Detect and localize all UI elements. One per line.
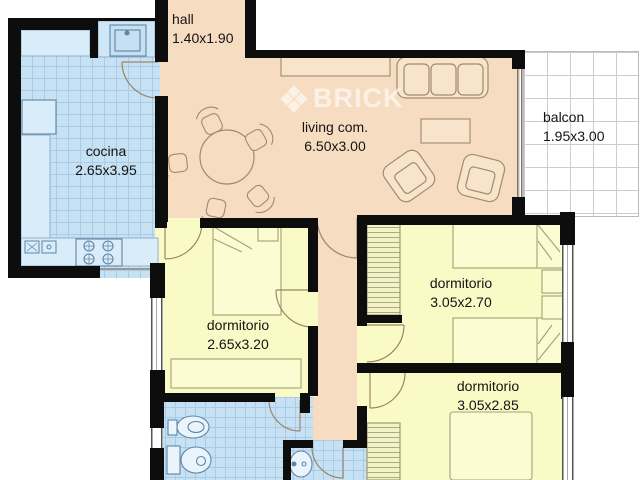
label-cocina: cocina 2.65x3.95 xyxy=(41,142,171,180)
floor-plan: BRICK hall 1.40x1.90 cocina 2.65x3.95 li… xyxy=(0,0,640,480)
toilet-icon xyxy=(167,446,211,474)
room-dims: 3.05x2.85 xyxy=(423,396,553,415)
room-name: hall xyxy=(172,10,234,29)
nightstand-icon xyxy=(542,270,563,319)
dresser-icon xyxy=(171,359,301,388)
room-dims: 1.95x3.00 xyxy=(543,127,605,146)
room-name: dormitorio xyxy=(423,377,553,396)
label-balcon: balcon 1.95x3.00 xyxy=(543,108,605,146)
kitchen-sink-icon xyxy=(110,25,146,56)
double-bed-icon xyxy=(450,412,532,480)
room-dims: 2.65x3.95 xyxy=(41,161,171,180)
label-dormitorio-1: dormitorio 2.65x3.20 xyxy=(173,316,303,354)
coffee-table-icon xyxy=(421,119,470,143)
sofa-icon xyxy=(397,57,488,98)
sideboard-icon xyxy=(281,57,390,76)
label-dormitorio-2: dormitorio 3.05x2.70 xyxy=(396,274,526,312)
room-dims: 1.40x1.90 xyxy=(172,29,234,48)
fridge-icon xyxy=(22,100,56,134)
room-name: dormitorio xyxy=(173,316,303,335)
label-hall: hall 1.40x1.90 xyxy=(172,10,234,48)
room-dims: 2.65x3.20 xyxy=(173,335,303,354)
bidet-icon xyxy=(168,416,209,438)
room-dims: 3.05x2.70 xyxy=(396,293,526,312)
room-name: balcon xyxy=(543,108,605,127)
room-dims: 6.50x3.00 xyxy=(270,137,400,156)
room-name: living com. xyxy=(270,118,400,137)
single-bed-icon xyxy=(213,222,281,315)
sliding-door xyxy=(517,69,523,197)
label-living: living com. 6.50x3.00 xyxy=(270,118,400,156)
room-name: dormitorio xyxy=(396,274,526,293)
washbasin-icon xyxy=(290,451,312,477)
stove-icon xyxy=(76,239,122,266)
wardrobe-icon xyxy=(367,423,400,480)
label-dormitorio-3: dormitorio 3.05x2.85 xyxy=(423,377,553,415)
room-name: cocina xyxy=(41,142,171,161)
